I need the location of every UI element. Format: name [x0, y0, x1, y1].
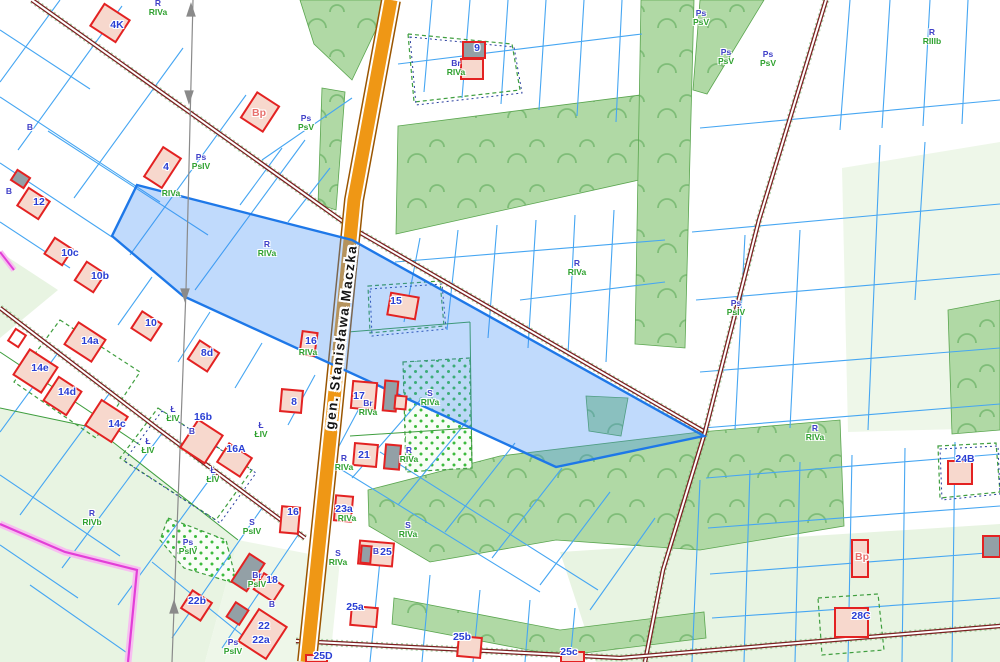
cadastral-map[interactable]: gen. Stanisława Maczka 4KBp491210c10b101…	[0, 0, 1000, 662]
building-footprint-25D[interactable]	[306, 655, 327, 662]
building-footprint-16b[interactable]	[180, 420, 222, 463]
building-footprint-8d[interactable]	[188, 341, 219, 372]
building-footprint-25c[interactable]	[561, 652, 584, 662]
building-footprint-Bp[interactable]	[852, 540, 868, 577]
building-footprint-16[interactable]	[299, 331, 317, 356]
building-footprint-9[interactable]	[463, 42, 485, 58]
building-footprint[interactable]	[461, 59, 483, 79]
building-footprint-23a[interactable]	[334, 495, 353, 521]
building-footprint-15[interactable]	[387, 293, 418, 320]
building-footprint-25a[interactable]	[350, 606, 378, 627]
map-canvas[interactable]	[0, 0, 1000, 662]
building-footprint-10b[interactable]	[75, 262, 105, 292]
building-footprint-8[interactable]	[280, 389, 303, 413]
building-footprint-16[interactable]	[280, 506, 300, 533]
building-footprint-16A[interactable]	[217, 443, 252, 476]
building-footprint-14a[interactable]	[65, 322, 106, 361]
building-footprint-10c[interactable]	[45, 238, 73, 265]
building-footprint[interactable]	[384, 444, 401, 469]
building-footprint-4[interactable]	[144, 147, 181, 188]
building-footprint[interactable]	[8, 329, 26, 347]
building-footprint[interactable]	[394, 396, 406, 410]
building-footprint-24B[interactable]	[948, 461, 972, 484]
building-footprint-10[interactable]	[131, 311, 161, 340]
building-footprint-28C[interactable]	[835, 608, 868, 637]
building-footprint-14d[interactable]	[44, 377, 82, 415]
building-footprint-Bp[interactable]	[241, 92, 279, 131]
building-footprint-21[interactable]	[353, 443, 378, 467]
building-footprint[interactable]	[983, 536, 1000, 557]
building-footprint-25b[interactable]	[457, 636, 482, 658]
building-footprint-4K[interactable]	[90, 4, 129, 42]
building-footprint[interactable]	[360, 546, 371, 564]
building-footprint-17[interactable]	[351, 381, 377, 410]
